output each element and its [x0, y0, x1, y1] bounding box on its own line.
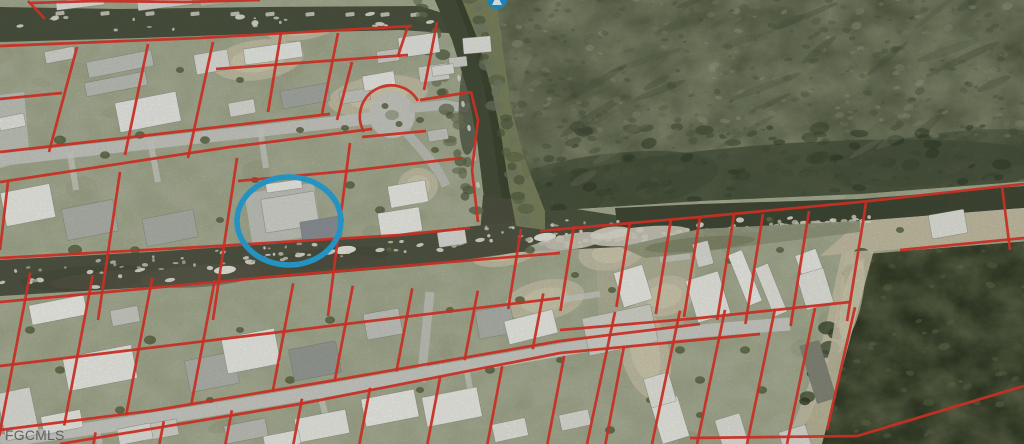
svg-text:FGCMLS: FGCMLS [5, 427, 65, 443]
